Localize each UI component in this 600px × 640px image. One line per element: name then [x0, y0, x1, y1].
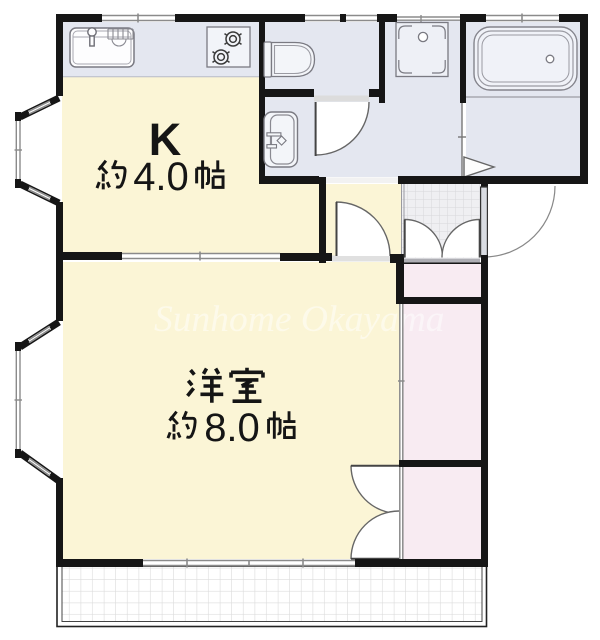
svg-text:4.0: 4.0 [133, 155, 189, 199]
svg-text:8.0: 8.0 [204, 406, 260, 450]
